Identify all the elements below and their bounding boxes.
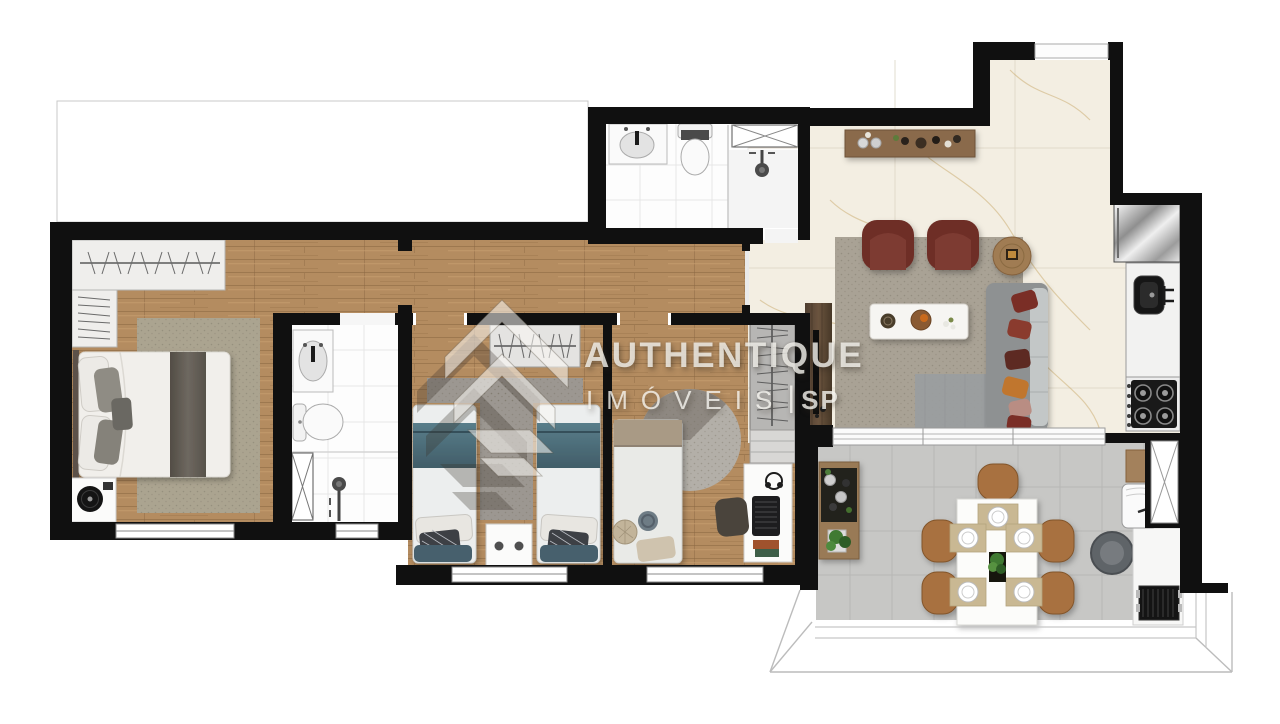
entry-door <box>1035 44 1108 58</box>
wardrobe-shelves <box>750 430 795 463</box>
master-door-gap <box>399 253 411 303</box>
double-bed-icon <box>73 350 230 478</box>
sliding-glass-door <box>833 428 1105 445</box>
coffee-table-icon <box>870 304 968 339</box>
cooktop-icon <box>1126 377 1180 431</box>
dining-chair-icon <box>978 464 1018 500</box>
sideboard-icon <box>845 130 975 157</box>
toilet-icon <box>293 404 343 441</box>
armchair-icon <box>927 220 979 270</box>
desk-chair-icon <box>714 496 750 537</box>
barbecue-grill-icon <box>1136 586 1182 620</box>
tv-icon <box>813 330 819 414</box>
door-gap-bedroom2 <box>413 313 467 325</box>
centerpiece-plant-icon <box>988 552 1006 582</box>
single-bed-icon <box>613 420 682 563</box>
nightstand-icon <box>486 524 532 566</box>
door-gap-bedroom3 <box>617 313 671 325</box>
outside-area-topleft <box>57 101 588 222</box>
single-bed-right-icon <box>537 405 600 563</box>
floorplan-canvas: AUTHENTIQUE IMÓVEIS | SP <box>0 0 1280 724</box>
floorplan-drawing <box>0 0 1280 724</box>
refrigerator-icon <box>1114 204 1180 262</box>
service-door <box>1151 441 1178 523</box>
hall-threshold <box>745 251 749 305</box>
books-icon <box>753 540 779 557</box>
counter-sink-icon <box>1126 263 1180 377</box>
armchair-icon <box>862 220 914 270</box>
toilet-icon <box>678 119 712 175</box>
side-table-icon <box>993 237 1031 275</box>
living-floor-topright <box>973 60 1110 126</box>
sofa-icon <box>986 283 1048 434</box>
wardrobe-top <box>72 240 225 290</box>
door-gap-social-bath <box>765 229 798 243</box>
desk-icon <box>744 464 792 562</box>
buffet-cabinet-icon <box>819 462 859 559</box>
hallway-floor <box>273 238 748 313</box>
grill-counter-icon <box>1133 528 1183 625</box>
turntable-table-icon <box>70 478 116 522</box>
laptop-icon <box>752 496 780 536</box>
door-gap-master-bath <box>340 313 395 325</box>
